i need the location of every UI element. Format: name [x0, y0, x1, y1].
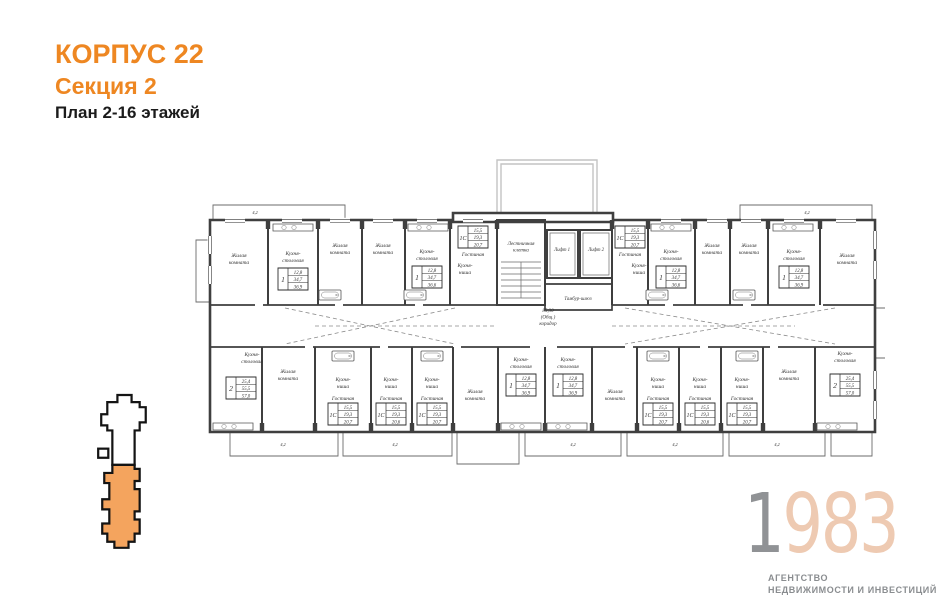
- wall-junction: [448, 220, 452, 229]
- vestibule-label: Тамбур-шлюз: [564, 297, 591, 302]
- wall-junction: [496, 423, 500, 432]
- unit-type-label: 1: [509, 381, 513, 390]
- unit-area-value: 19,3: [743, 413, 752, 418]
- room-label: Гостиная: [646, 396, 670, 402]
- unit-type-label: 1С: [377, 413, 385, 419]
- wall-junction: [646, 220, 650, 229]
- room-label: Жилаякомната: [229, 253, 250, 266]
- building-title: КОРПУС 22: [55, 38, 204, 72]
- room-label: Жилаякомната: [278, 369, 299, 382]
- wall-junction: [693, 220, 697, 229]
- room-label: Жилаякомната: [465, 389, 486, 402]
- unit-area-value: 36,6: [428, 284, 437, 289]
- section-minimap: [86, 392, 164, 564]
- unit-area-value: 15,5: [392, 406, 401, 411]
- room-label: Кухня-ниша: [456, 263, 472, 276]
- room-label: Кухня-ниша: [691, 377, 707, 390]
- logo-tagline: АГЕНТСТВО НЕДВИЖИМОСТИ И ИНВЕСТИЦИЙ: [768, 572, 934, 596]
- kitchen-counter: [651, 224, 691, 231]
- kitchen-counter: [547, 423, 587, 430]
- wall-junction: [313, 423, 317, 432]
- wall-junction: [677, 423, 681, 432]
- unit-area-value: 19,3: [344, 413, 353, 418]
- unit-area-value: 19,3: [433, 413, 442, 418]
- wall-junction: [761, 423, 765, 432]
- unit-area-value: 20,7: [659, 421, 668, 426]
- unit-type-label: 1: [782, 273, 786, 282]
- unit-area-value: 12,8: [294, 271, 303, 276]
- unit-area-value: 36,9: [522, 392, 531, 397]
- unit-area-value: 20,7: [631, 244, 640, 249]
- section-title: Секция 2: [55, 72, 204, 102]
- unit-area-value: 34,7: [294, 278, 303, 283]
- logo-tagline-line2: НЕДВИЖИМОСТИ И ИНВЕСТИЦИЙ: [768, 584, 934, 596]
- unit-area-value: 20,7: [743, 421, 752, 426]
- wall-junction: [766, 220, 770, 229]
- wall-junction: [260, 423, 264, 432]
- kitchen-counter: [213, 423, 253, 430]
- room-label: Кухня-ниша: [334, 377, 350, 390]
- wall-junction: [403, 220, 407, 229]
- logo-year-digits-983: 983: [782, 477, 897, 572]
- bathtub: [646, 290, 668, 300]
- room-label: Гостиная: [420, 396, 444, 402]
- wall-junction: [590, 423, 594, 432]
- room-label: Кухня-ниша: [733, 377, 749, 390]
- wall-junction: [451, 423, 455, 432]
- unit-type-label: 1С: [686, 413, 694, 419]
- unit-type-label: 2: [833, 381, 837, 390]
- logo-year-digit-1: 1: [744, 477, 782, 572]
- room-label: Жилаякомната: [373, 243, 394, 256]
- room-label: Жилаякомната: [330, 243, 351, 256]
- kitchen-counter: [817, 423, 857, 430]
- room-label: Жилаякомната: [779, 369, 800, 382]
- unit-area-value: 15,5: [474, 229, 483, 234]
- unit-type-label: 1С: [459, 236, 467, 242]
- wall-junction: [266, 220, 270, 229]
- unit-type-label: 1С: [418, 413, 426, 419]
- agency-logo: 1983 АГЕНТСТВО НЕДВИЖИМОСТИ И ИНВЕСТИЦИЙ: [744, 484, 934, 596]
- minimap-current-section: [102, 465, 139, 548]
- wall-junction: [495, 220, 499, 229]
- unit-type-label: 1С: [329, 413, 337, 419]
- unit-type-label: 2: [229, 384, 233, 393]
- page: КОРПУС 22 Секция 2 План 2-16 этажей: [0, 0, 941, 600]
- unit-area-value: 20,7: [474, 244, 483, 249]
- bathtub: [647, 351, 669, 361]
- unit-area-value: 20,6: [701, 421, 710, 426]
- logo-tagline-line1: АГЕНТСТВО: [768, 572, 934, 584]
- unit-area-value: 19,3: [392, 413, 401, 418]
- bathtub: [733, 290, 755, 300]
- unit-area-value: 36,9: [795, 284, 804, 289]
- wall-junction: [543, 423, 547, 432]
- unit-type-label: 1С: [616, 236, 624, 242]
- room-label: Гостиная: [461, 252, 485, 258]
- unit-area-value: 15,5: [433, 406, 442, 411]
- bathtub: [736, 351, 758, 361]
- unit-area-value: 34,7: [428, 276, 437, 281]
- title-block: КОРПУС 22 Секция 2 План 2-16 этажей: [55, 38, 204, 125]
- unit-type-label: 1С: [644, 413, 652, 419]
- lift-2-label: Лифт 2: [587, 248, 605, 253]
- unit-type-label: 1С: [728, 413, 736, 419]
- wall-junction: [369, 423, 373, 432]
- room-label: Кухня-ниша: [630, 263, 646, 276]
- unit-area-value: 34,7: [522, 384, 531, 389]
- floors-title: План 2-16 этажей: [55, 102, 204, 125]
- lift-1-label: Лифт 1: [553, 248, 570, 253]
- unit-area-value: 12,8: [569, 377, 578, 382]
- unit-area-value: 12,8: [522, 377, 531, 382]
- wall-junction: [728, 220, 732, 229]
- unit-type-label: 1: [281, 275, 285, 284]
- unit-area-value: 36,6: [672, 284, 681, 289]
- unit-area-value: 20,7: [344, 421, 353, 426]
- unit-area-value: 57,0: [242, 395, 251, 400]
- balcony-top-left: [213, 205, 345, 220]
- unit-type-label: 1: [659, 273, 663, 282]
- canopy-inner-line: [501, 164, 593, 215]
- floor-plan: ЖилаякомнатаКухня-столоваяЖилаякомнатаЖи…: [195, 145, 885, 470]
- wall-junction: [360, 220, 364, 229]
- kitchen-counter: [773, 224, 813, 231]
- wall-junction: [610, 220, 614, 229]
- kitchen-counter: [273, 224, 313, 231]
- entrance-porch: [457, 432, 519, 464]
- room-label: Жилаякомната: [739, 243, 760, 256]
- unit-area-value: 36,9: [294, 286, 303, 291]
- minimap-notch: [98, 449, 108, 458]
- room-label: Гостиная: [730, 396, 754, 402]
- unit-type-label: 1: [556, 381, 560, 390]
- room-label: Гостиная: [688, 396, 712, 402]
- room-label: Гостиная: [379, 396, 403, 402]
- unit-area-value: 19,3: [474, 236, 483, 241]
- unit-area-value: 19,3: [659, 413, 668, 418]
- room-label: Жилаякомната: [837, 253, 858, 266]
- unit-area-value: 25,4: [846, 377, 855, 382]
- unit-area-value: 36,9: [569, 392, 578, 397]
- room-label: Жилаякомната: [605, 389, 626, 402]
- room-label: Кухня-ниша: [382, 377, 398, 390]
- entrance-canopy-outline: [497, 160, 597, 215]
- unit-area-value: 34,7: [795, 276, 804, 281]
- unit-area-value: 55,5: [242, 387, 251, 392]
- room-label: Гостиная: [618, 252, 642, 258]
- wall-junction: [316, 220, 320, 229]
- unit-area-value: 34,7: [569, 384, 578, 389]
- balcony-bottom-6: [831, 432, 872, 456]
- canopy-outer-line: [497, 160, 597, 215]
- unit-area-value: 19,3: [701, 413, 710, 418]
- wall-junction: [410, 423, 414, 432]
- unit-area-value: 57,0: [846, 392, 855, 397]
- wall-junction: [635, 423, 639, 432]
- room-label: Кухня-ниша: [649, 377, 665, 390]
- room-label: Кухня-ниша: [423, 377, 439, 390]
- wall-junction: [719, 423, 723, 432]
- bathtub: [421, 351, 443, 361]
- unit-area-value: 34,7: [672, 276, 681, 281]
- unit-area-value: 12,8: [672, 269, 681, 274]
- room-label: Гостиная: [331, 396, 355, 402]
- unit-area-value: 20,6: [392, 421, 401, 426]
- bathtub: [404, 290, 426, 300]
- unit-area-value: 12,8: [795, 269, 804, 274]
- logo-year: 1983: [744, 484, 892, 566]
- unit-area-value: 15,5: [659, 406, 668, 411]
- unit-area-value: 15,5: [631, 229, 640, 234]
- wall-junction: [813, 423, 817, 432]
- unit-area-value: 15,5: [743, 406, 752, 411]
- wall-junction: [818, 220, 822, 229]
- balcony-right-bay: [875, 308, 885, 358]
- bathtub: [332, 351, 354, 361]
- room-label: Жилаякомната: [702, 243, 723, 256]
- unit-area-value: 19,3: [631, 236, 640, 241]
- bathtub: [319, 290, 341, 300]
- kitchen-counter: [408, 224, 448, 231]
- unit-area-value: 20,7: [433, 421, 442, 426]
- kitchen-counter: [501, 423, 541, 430]
- unit-area-value: 55,5: [846, 384, 855, 389]
- unit-area-value: 15,5: [344, 406, 353, 411]
- unit-type-label: 1: [415, 273, 419, 282]
- unit-area-value: 12,8: [428, 269, 437, 274]
- unit-area-value: 25,4: [242, 380, 251, 385]
- unit-area-value: 15,5: [701, 406, 710, 411]
